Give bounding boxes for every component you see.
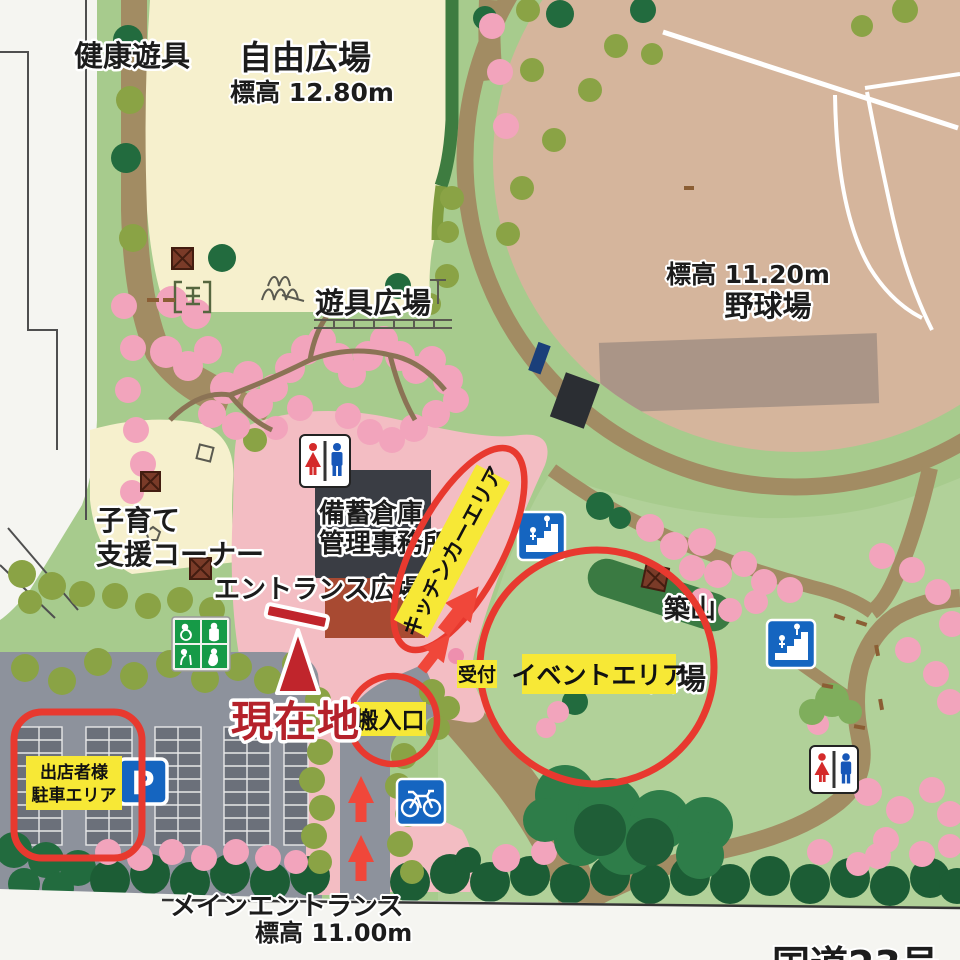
childcare-label-2: 支援コーナー [96, 538, 264, 571]
park-map: P 健康遊具 自由広場 標高 12.80m 遊具広場 標高 11.20m 野球場… [0, 0, 960, 960]
main-entrance-label: メインエントランス [170, 892, 403, 922]
park-map-sign: P 健康遊具 自由広場 標高 12.80m 遊具広場 標高 11.20m 野球場… [0, 0, 960, 960]
stairs-icon-east [767, 620, 815, 668]
accessibility-panel-icon [172, 617, 230, 671]
free-plaza-label: 自由広場 [239, 38, 371, 77]
entrance-plaza-label: エントランス広場 [214, 574, 421, 605]
reception-label: 受付 [457, 660, 497, 688]
reception-label-text: 受付 [458, 663, 496, 686]
toilet-icon-east [810, 746, 858, 793]
wheelchair-icon [183, 625, 188, 630]
baseball-elevation: 標高 11.20m [666, 260, 830, 289]
baseball-label: 野球場 [724, 289, 811, 323]
stairs-icon-west [518, 512, 565, 560]
free-plaza-elevation: 標高 12.80m [230, 78, 394, 107]
childcare-label-1: 子育て [96, 504, 180, 537]
vendor-parking-label-line1: 出店者様 [40, 762, 109, 783]
vendor-parking-label: 出店者様 駐車エリア [26, 756, 122, 810]
vendor-parking-label-line2: 駐車エリア [32, 785, 117, 806]
event-area-label-text: イベントエリア [511, 661, 686, 690]
toilet-icon [300, 435, 350, 487]
elderly-icon [182, 650, 186, 654]
main-entrance-elevation: 標高 11.00m [255, 919, 412, 947]
bicycle-icon [397, 779, 445, 825]
health-equipment-label: 健康遊具 [74, 39, 190, 73]
route-label: 国道23号 [772, 943, 939, 960]
pregnant-icon [212, 649, 216, 653]
loading-entrance-label: 搬入口 [354, 702, 426, 736]
warehouse-label-1: 備蓄倉庫 [319, 498, 423, 529]
loading-entrance-label-text: 搬入口 [356, 707, 425, 734]
playground-label: 遊具広場 [315, 286, 431, 320]
current-location-text: 現在地 [231, 697, 360, 746]
event-area-label: イベントエリア [511, 654, 686, 694]
